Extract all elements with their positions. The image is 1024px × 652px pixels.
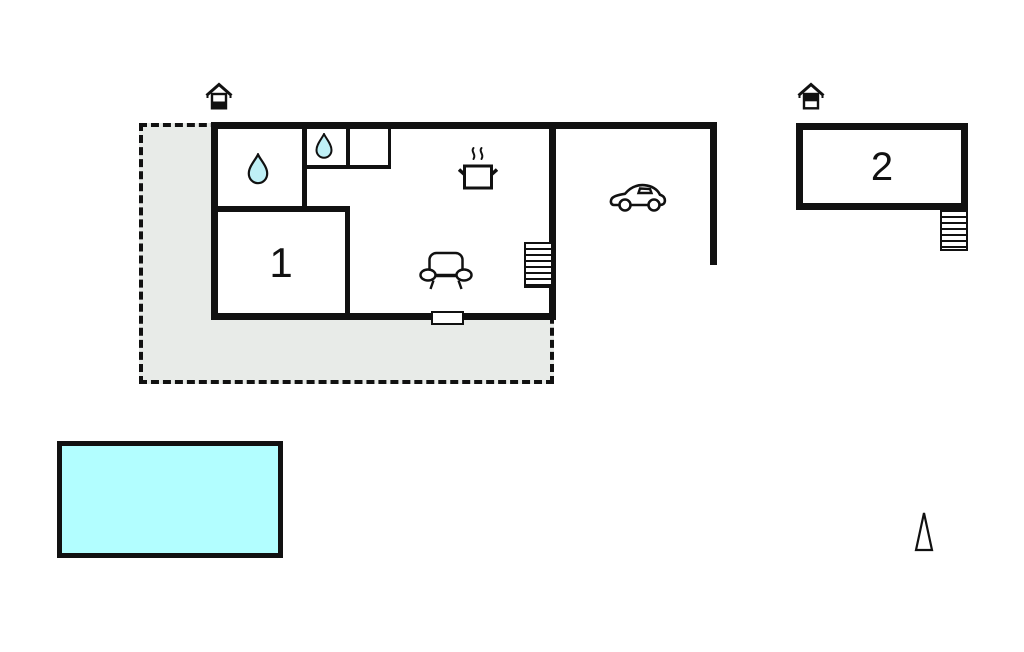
annex-building: 2 xyxy=(796,123,968,210)
swimming-pool xyxy=(57,441,283,558)
room-1-label: 1 xyxy=(269,242,292,284)
sofa-icon xyxy=(419,251,473,291)
stairs-icon xyxy=(940,210,968,251)
water-drop-icon xyxy=(247,153,269,185)
wall-small-rooms-bottom xyxy=(302,165,391,169)
window-icon xyxy=(431,311,464,325)
wall-small-rooms-divider xyxy=(346,129,350,165)
entrance-house-icon xyxy=(204,82,234,110)
main-building: 1 xyxy=(211,122,556,320)
stairs-icon xyxy=(524,242,553,288)
kitchen-pot-icon xyxy=(458,146,498,192)
wall-small-rooms-right xyxy=(388,129,391,165)
wall-room1-right xyxy=(345,206,350,313)
carport-top-wall xyxy=(549,122,717,129)
wall-bathroom-right xyxy=(302,129,307,212)
wall-bathroom-bottom xyxy=(218,206,350,212)
floor-plan-canvas: 1 xyxy=(0,0,1024,652)
car-icon xyxy=(609,179,667,215)
north-arrow-icon xyxy=(913,511,935,553)
carport-right-wall xyxy=(710,122,717,265)
entrance-house-icon xyxy=(796,82,826,110)
water-drop-icon xyxy=(315,133,333,159)
room-2-label: 2 xyxy=(871,147,893,187)
